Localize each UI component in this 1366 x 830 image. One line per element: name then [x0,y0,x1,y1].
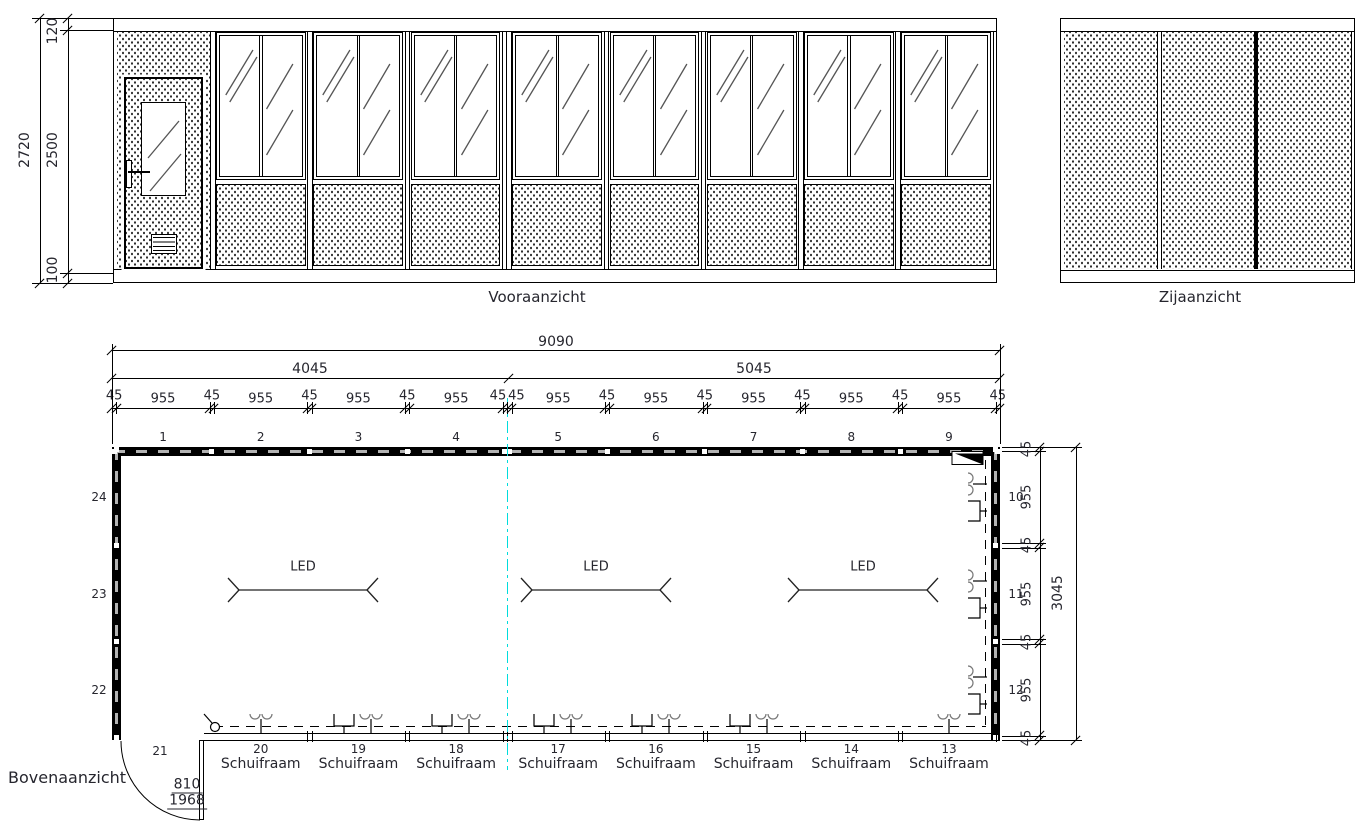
front-window-glass-icon [517,36,597,176]
plan-dim-chain-value: 45 [301,389,318,404]
plan-position-number: 23 [91,587,106,601]
led-fixture-icon [785,574,941,606]
wall-joint-marker [114,543,119,548]
plan-position-number: 17 [551,742,566,756]
plan-position-number: 22 [91,683,106,697]
plan-bottom-wall-joint [902,731,903,742]
plan-dim-chain-value: 45 [599,389,616,404]
plan-door-hinge-icon [200,710,224,734]
sliding-window-label: Schuifraam [616,756,696,772]
front-dim-line-total [40,18,41,283]
plan-dim-right-chain-value: 45 [1020,633,1035,650]
plan-dim-ext [902,402,903,414]
wall-joint-marker [605,449,610,454]
front-window-glass-icon [809,36,889,176]
plan-position-number: 3 [355,430,363,444]
plan-bottom-wall-joint [800,731,801,742]
front-door-vent-slats [153,237,175,251]
plan-dim-chain-value: 955 [839,392,864,407]
plan-dim-chain-value: 45 [508,389,525,404]
sliding-window-label: Schuifraam [909,756,989,772]
front-window-glass-icon [906,36,986,176]
plan-view-label: Bovenaanzicht [8,768,126,787]
wall-joint-marker [114,447,119,452]
wall-joint-marker [993,543,998,548]
plan-dim-line-right-total [1076,447,1077,740]
plan-dim-line-chain [112,408,1000,409]
plan-dim-chain-value: 45 [490,389,507,404]
plan-right-wall-dashes [994,449,996,738]
front-door-handle-icon [126,160,132,188]
plan-bottom-wall-joint [312,731,313,742]
wall-joint-marker [800,449,805,454]
plan-bottom-wall-joint [805,731,806,742]
side-panel-hatch [1064,32,1157,269]
plan-dim-chain-value: 45 [892,389,909,404]
plan-bottom-wall-joint [609,731,610,742]
plan-bottom-wall-joint [605,731,606,742]
plan-dim-chain-value: 45 [204,389,221,404]
led-label: LED [850,560,875,575]
front-window-glass-icon [712,36,792,176]
front-sill-panel [707,184,797,266]
sliding-window-symbol-icon [961,469,987,525]
plan-dim-chain-value: 955 [546,392,571,407]
front-mullion [506,32,507,269]
plan-position-number: 20 [253,742,268,756]
plan-position-number: 4 [452,430,460,444]
side-panel-hatch [1161,32,1254,269]
plan-top-wall-dashes [114,450,998,452]
plan-dim-ext [112,344,113,444]
plan-bottom-wall-joint [703,731,704,742]
plan-position-number: 21 [152,744,167,758]
sliding-window-symbol-icon [726,707,782,733]
sliding-window-label: Schuifraam [416,756,496,772]
plan-position-number: 8 [847,430,855,444]
plan-position-number: 18 [448,742,463,756]
wall-joint-marker [993,639,998,644]
front-door-handle-lever [128,171,150,173]
plan-bottom-wall-joint [409,731,410,742]
wall-joint-marker [993,447,998,452]
led-label: LED [583,560,608,575]
side-bottom-rail-line [1061,270,1354,271]
plan-dim-chain-value: 955 [151,392,176,407]
plan-dim-ext [1000,344,1001,444]
plan-dim-total: 9090 [538,334,574,350]
front-window-glass-icon [416,36,496,176]
plan-position-number: 5 [554,430,562,444]
front-dim-line-chain [68,18,69,283]
front-sill-panel [216,184,306,266]
plan-bottom-wall-line [204,740,1000,741]
plan-dim-chain-value: 955 [444,392,469,407]
front-window-glass-icon [318,36,398,176]
plan-position-number: 15 [746,742,761,756]
plan-bottom-wall-joint [503,731,504,742]
front-mullion [210,32,211,269]
sliding-window-symbol-icon [937,707,963,733]
plan-dim-chain-value: 45 [106,389,123,404]
plan-dim-right-chain-value: 955 [1020,677,1035,702]
wall-joint-marker [209,449,214,454]
wall-joint-marker [307,449,312,454]
front-mullion [307,32,308,269]
plan-bottom-wall-joint [898,731,899,742]
front-dim-top: 120 [45,18,61,45]
plan-position-number: 9 [945,430,953,444]
led-fixture-icon [225,574,381,606]
wall-joint-marker [898,449,903,454]
plan-dim-ext [707,402,708,414]
plan-dim-chain-value: 45 [696,389,713,404]
plan-position-number: 16 [648,742,663,756]
front-sill-panel [901,184,991,266]
plan-dim-ext [409,402,410,414]
plan-bottom-wall-joint [512,731,513,742]
plan-dim-line-right-chain [1040,447,1041,740]
plan-dim-chain-value: 45 [990,389,1007,404]
plan-dim-right-chain-value: 45 [1020,730,1035,747]
plan-position-number: 1 [159,430,167,444]
plan-door-width-dim: 810 [172,777,203,794]
front-sill-panel [313,184,403,266]
plan-dim-ext [116,402,117,414]
plan-dim-right-span: 5045 [736,361,772,377]
front-mullion [701,32,702,269]
front-mullion [798,32,799,269]
plan-position-number: 6 [652,430,660,444]
plan-dim-chain-value: 955 [248,392,273,407]
side-panel-divider [1161,32,1162,269]
sliding-window-label: Schuifraam [518,756,598,772]
plan-door-height-dim: 1968 [167,793,207,810]
front-sill-panel [512,184,602,266]
front-dim-total: 2720 [17,132,33,168]
plan-dim-ext [805,402,806,414]
front-mullion [895,32,896,269]
plan-bottom-wall-line [204,733,1000,734]
plan-bottom-wall-joint [405,731,406,742]
plan-centerline [507,398,508,770]
sliding-window-symbol-icon [961,566,987,622]
plan-dim-chain-value: 955 [937,392,962,407]
plan-dim-line-total [112,350,1000,351]
plan-dim-chain-value: 955 [741,392,766,407]
plan-bottom-wall-joint [996,731,997,742]
sliding-window-symbol-icon [961,662,987,718]
plan-dim-line-span [112,378,1000,379]
sliding-window-label: Schuifraam [714,756,794,772]
front-mullion [502,32,503,269]
plan-position-number: 13 [941,742,956,756]
sliding-window-symbol-icon [330,707,386,733]
side-panel-divider [1157,32,1158,269]
plan-position-number: 2 [257,430,265,444]
front-sill-panel [610,184,700,266]
sliding-window-symbol-icon [428,707,484,733]
front-dim-ext [60,30,113,31]
wall-joint-marker [702,449,707,454]
plan-dim-ext [312,402,313,414]
front-dim-ext [60,273,113,274]
side-edge-line [1351,32,1352,269]
plan-dim-ext [1002,740,1082,741]
side-panel-divider-thick [1254,32,1258,269]
plan-dim-right-chain-value: 45 [1020,441,1035,458]
plan-dim-left-span: 4045 [292,361,328,377]
front-window-glass-icon [615,36,695,176]
front-view-label: Vooraanzicht [488,288,585,306]
front-mullion [405,32,406,269]
plan-dim-right-chain-value: 955 [1020,581,1035,606]
side-panel-hatch [1258,32,1351,269]
plan-position-number: 19 [351,742,366,756]
front-sill-panel [411,184,501,266]
led-fixture-icon [518,574,674,606]
plan-dim-chain-value: 45 [399,389,416,404]
plan-dim-chain-value: 955 [346,392,371,407]
plan-dim-right-chain-value: 955 [1020,485,1035,510]
sliding-window-symbol-icon [249,707,275,733]
plan-bottom-wall-joint [707,731,708,742]
sliding-window-label: Schuifraam [319,756,399,772]
sliding-window-symbol-icon [628,707,684,733]
front-window-glass-icon [221,36,301,176]
plan-dim-ext [512,402,513,414]
plan-dim-chain-value: 955 [643,392,668,407]
plan-dim-right-total: 3045 [1050,575,1066,611]
sliding-window-label: Schuifraam [221,756,301,772]
plan-dim-ext [609,402,610,414]
front-door-glass-icon [141,102,186,196]
front-mullion [993,32,994,269]
plan-position-number: 24 [91,490,106,504]
sliding-window-symbol-icon [530,707,586,733]
wall-joint-marker [114,639,119,644]
front-dim-bottom: 100 [45,257,61,284]
plan-position-number: 7 [750,430,758,444]
plan-bottom-wall-joint [307,731,308,742]
plan-corner-marker-icon [951,450,987,468]
plan-left-wall-dashes [115,449,117,738]
technical-drawing-canvas: Vooraanzicht Zijaanzicht Bovenaanzicht 2… [0,0,1366,829]
plan-position-number: 14 [844,742,859,756]
led-label: LED [290,560,315,575]
front-bottom-rail-line [114,269,996,270]
sliding-window-label: Schuifraam [811,756,891,772]
front-mullion [604,32,605,269]
side-view-label: Zijaanzicht [1159,288,1241,306]
plan-dim-ext [214,402,215,414]
front-dim-middle: 2500 [45,132,61,168]
plan-dim-chain-value: 45 [794,389,811,404]
wall-joint-marker [405,449,410,454]
plan-dim-right-chain-value: 45 [1020,537,1035,554]
front-sill-panel [804,184,894,266]
